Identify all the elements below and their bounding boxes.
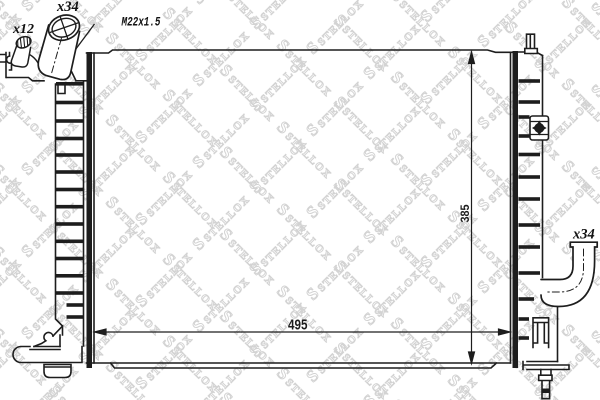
svg-text:STELLOX: STELLOX xyxy=(258,0,309,23)
svg-text:x34: x34 xyxy=(572,227,595,243)
svg-text:STELLOX: STELLOX xyxy=(454,137,505,188)
svg-text:S: S xyxy=(387,395,407,400)
svg-text:S: S xyxy=(587,81,600,101)
svg-text:STELLOX: STELLOX xyxy=(454,301,505,352)
svg-text:x12: x12 xyxy=(12,22,34,37)
svg-text:STELLOX: STELLOX xyxy=(169,262,220,313)
svg-text:STELLOX: STELLOX xyxy=(454,55,505,106)
svg-text:STELLOX: STELLOX xyxy=(169,16,220,67)
svg-text:S: S xyxy=(587,327,600,347)
svg-text:M22x1.5: M22x1.5 xyxy=(121,15,161,30)
svg-text:S: S xyxy=(188,0,208,8)
svg-text:STELLOX: STELLOX xyxy=(283,376,334,400)
svg-text:S: S xyxy=(587,0,600,19)
svg-text:S: S xyxy=(359,0,379,1)
svg-text:STELLOX: STELLOX xyxy=(55,394,106,400)
svg-text:STELLOX: STELLOX xyxy=(169,344,220,395)
svg-text:STELLOX: STELLOX xyxy=(454,219,505,270)
svg-text:385: 385 xyxy=(460,204,472,223)
svg-text:STELLOX: STELLOX xyxy=(169,98,220,149)
svg-text:495: 495 xyxy=(288,318,308,334)
svg-text:S: S xyxy=(17,0,37,15)
svg-text:STELLOX: STELLOX xyxy=(169,180,220,231)
svg-text:S: S xyxy=(587,163,600,183)
svg-text:STELLOX: STELLOX xyxy=(429,0,480,16)
svg-text:STELLOX: STELLOX xyxy=(454,383,505,400)
svg-text:x34: x34 xyxy=(56,0,79,15)
